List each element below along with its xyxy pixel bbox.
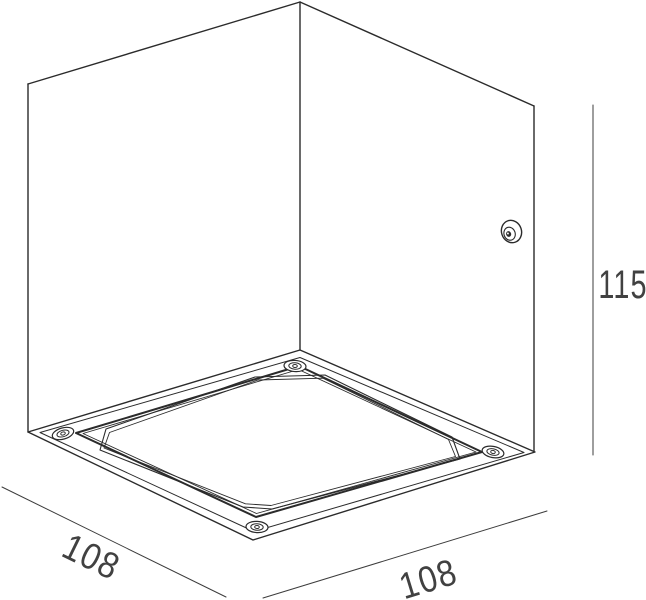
side-screw-outer xyxy=(498,218,524,246)
drawing-canvas: 108 108 115 xyxy=(0,0,646,600)
glass-outline-outer xyxy=(100,375,460,509)
screw-far xyxy=(246,521,269,533)
bottom-frame xyxy=(28,350,535,540)
dimension-drawing: 108 108 115 xyxy=(0,0,646,600)
screw-left xyxy=(51,425,75,442)
dimension-height: 115 xyxy=(593,105,646,455)
screw-left-head xyxy=(51,425,75,442)
glass-panel xyxy=(100,375,460,509)
dimension-depth: 108 xyxy=(263,511,547,600)
cube-outline xyxy=(28,2,534,451)
screw-right-head xyxy=(481,444,505,459)
screw-right xyxy=(481,444,505,459)
frame-band-outer xyxy=(76,366,482,517)
frame-band-inner xyxy=(83,370,476,514)
cube-top-edges xyxy=(28,2,534,106)
frame-rim-line xyxy=(40,358,524,532)
screw-far-head xyxy=(246,521,269,533)
dimension-depth-label: 108 xyxy=(395,551,463,600)
dimension-height-label: 115 xyxy=(598,262,646,307)
side-screw xyxy=(498,218,524,246)
dimension-width-label: 108 xyxy=(56,526,127,589)
